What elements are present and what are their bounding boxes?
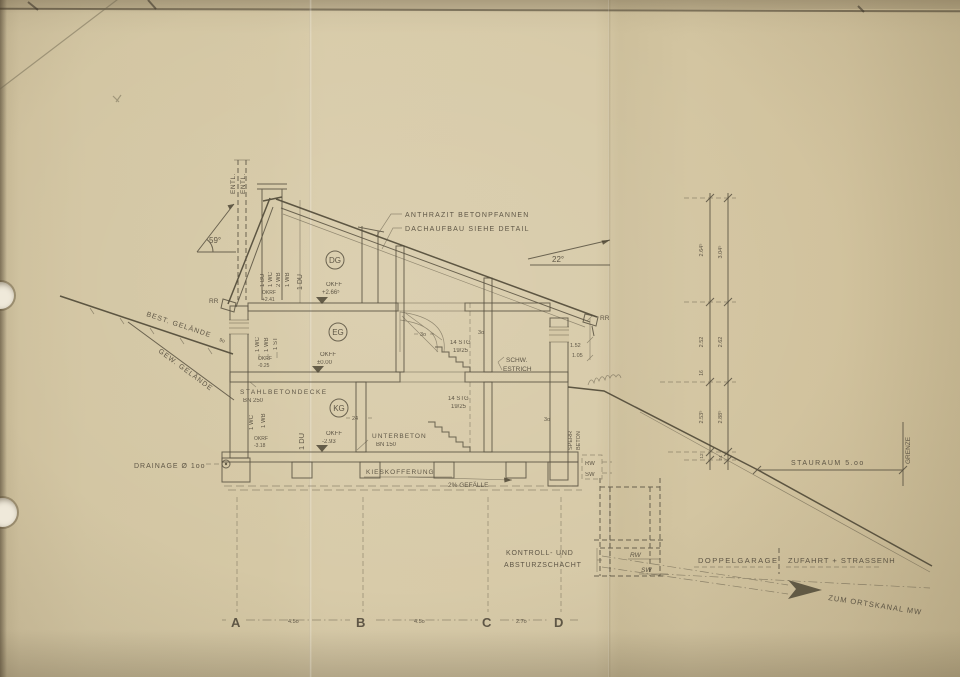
slope-label: 2% GEFÄLLE: [448, 481, 489, 489]
level-kg-label: OKFF: [326, 431, 342, 437]
base-note-1: UNTERBETON: [372, 433, 427, 440]
window-left-gap: [229, 320, 249, 334]
wall-dim-arrows: [346, 334, 434, 418]
vent-label-2: ENTL.: [240, 173, 247, 194]
window-right: [549, 327, 569, 342]
stauraum-label: STAURAUM 5.oo: [791, 460, 865, 467]
slope-arrow-line: [408, 477, 512, 480]
chain-dim: 2.88⁵: [717, 411, 724, 424]
fixture-label: 1 WC: [249, 414, 255, 430]
fixture-label: 1 WB: [264, 337, 270, 352]
chain-extension-lines: [660, 198, 736, 460]
wall-dim: 3o: [478, 330, 484, 336]
chain-dim: 3.04⁵: [717, 246, 724, 259]
waterproof-note-2: BETON: [576, 431, 582, 450]
chain-lines: [710, 193, 728, 470]
drainage-pipe-dot: [225, 463, 227, 465]
axis-label-b: B: [356, 615, 365, 630]
gravel-label: KIESKOFFERUNG: [366, 469, 435, 476]
rainwater-label: RW: [585, 461, 595, 467]
rainwater-line-label: RW: [630, 552, 642, 559]
sewer-arrow-icon: [788, 580, 822, 599]
slab-note-2: BN 250: [243, 398, 264, 404]
pitch-left-label: 59°: [209, 236, 221, 245]
roof-note-2: DACHAUFBAU SIEHE DETAIL: [405, 226, 530, 233]
eave-dim-line: [587, 315, 593, 361]
level-dg-value: +2.66⁵: [322, 289, 340, 296]
level-eg-label: OKFF: [320, 352, 336, 358]
storey-label-kg: KG: [333, 404, 345, 413]
blueprint-paper: BEST. GELÄNDE 9o GEW. GELÄNDE DRAINAGE Ø…: [0, 0, 960, 677]
stair-note-1b: 19/25: [453, 348, 469, 354]
shaft-label-1: KONTROLL- UND: [506, 550, 574, 557]
storey-label-dg: DG: [329, 256, 341, 265]
pitch-right-arrow: [602, 240, 611, 245]
section-drawing-svg: BEST. GELÄNDE 9o GEW. GELÄNDE DRAINAGE Ø…: [0, 0, 960, 677]
wastewater-line-label: SW: [641, 567, 652, 574]
screed-note-2: ESTRICH: [503, 366, 532, 373]
fixture-label: 1 WB: [285, 272, 291, 287]
slab-note-1: STAHLBETONDECKE: [240, 389, 328, 396]
vent-label-1: ENTL.: [230, 173, 237, 194]
garage-label: DOPPELGARAGE: [698, 556, 779, 565]
screed-note-1: SCHW.: [506, 357, 528, 364]
pitch-right-triangle: [528, 240, 610, 265]
chain-dim: 2.52: [699, 337, 705, 348]
chain-dim: 2.64⁵: [698, 244, 705, 257]
existing-grade-dim: 9o: [218, 337, 225, 345]
gutter-right-label: RR: [600, 315, 610, 322]
eave-dim-2: 1.05: [572, 353, 583, 359]
sublevel-eg-value: -0.25: [258, 363, 270, 369]
sublevel-kg-label: OKRF: [254, 436, 268, 442]
fixture-label: 1 WC: [255, 336, 261, 352]
level-markers: [312, 297, 328, 452]
storey-label-eg: EG: [332, 328, 344, 337]
axis-dim: 4.5o: [288, 619, 299, 625]
wall-dim: 3o: [544, 417, 550, 423]
interior-annotations: DG EG KG OKFF +2.66⁵ OKFF ±0.00 OKFF -2.…: [240, 251, 612, 489]
window-left: [229, 320, 249, 334]
stair-note-2a: 14 STG: [448, 396, 469, 402]
boundary-label: GRENZE: [905, 436, 912, 464]
sublevel-dg-label: OKRF: [262, 290, 276, 296]
fixture-label: 1 WB: [261, 413, 267, 428]
shrub-symbol: [588, 375, 621, 385]
wastewater-label: SW: [585, 472, 595, 478]
chain-dim: 2.53⁵: [698, 411, 705, 424]
sublevel-kg-value: -3.18: [254, 443, 266, 449]
gutter-left-label: RR: [209, 298, 219, 305]
fixture-label: 2 WB: [276, 272, 282, 287]
stauraum-line: [753, 466, 907, 474]
fixture-label: 1 DU: [297, 433, 306, 450]
sublevel-dg-value: +2.41: [262, 297, 275, 303]
chain-dim: 12: [699, 453, 705, 459]
shaft-label-2: ABSTURZSCHACHT: [504, 562, 582, 569]
existing-grade-line: [60, 296, 233, 354]
fixture-label: 1 ST: [273, 337, 279, 350]
level-kg-value: -2.93: [322, 439, 336, 445]
level-eg-value: ±0.00: [317, 360, 333, 366]
fixture-label: 1 DU: [297, 274, 304, 290]
new-grade-line: [128, 322, 234, 400]
new-grade-label: GEW. GELÄNDE: [157, 347, 215, 393]
pitch-right-label: 22°: [552, 255, 564, 264]
level-dg-label: OKFF: [326, 282, 342, 288]
sublevel-eg-label: OKRF: [258, 356, 272, 362]
slab-note-leader: [250, 382, 256, 387]
stair-note-2b: 19/25: [451, 404, 467, 410]
wall-dim: 3o: [420, 332, 426, 338]
eave-dim-1: 1.52: [570, 343, 581, 349]
roof-pitch-right: 22°: [528, 240, 610, 265]
stair-note-1a: 14 STG: [450, 340, 471, 346]
house-sewer-connections: RW SW: [582, 455, 612, 479]
pencil-marks: [0, 0, 864, 102]
base-note-2: BN 150: [376, 442, 397, 448]
stairs: [400, 303, 470, 452]
interior-walls: [356, 246, 492, 452]
edge-tick-marks: [28, 0, 864, 12]
stair-flight-kg: [428, 422, 470, 452]
roof-pitch-left: 59°: [197, 204, 236, 252]
window-right-gap: [549, 327, 569, 342]
fixture-label: 1 WC: [268, 271, 274, 287]
wall-dim: 24: [352, 416, 358, 422]
drainage-label: DRAINAGE Ø 1oo: [134, 463, 206, 470]
axis-label-c: C: [482, 615, 492, 630]
axis-label-a: A: [231, 615, 241, 630]
pencil-diagonal: [0, 0, 130, 102]
axis-label-d: D: [554, 615, 563, 630]
chain-dim: 2.62: [718, 337, 724, 348]
gravel-bed-lines: [224, 486, 582, 490]
sewer-arrow-label: ZUM ORTSKANAL MW: [828, 593, 923, 617]
chain-dim: 16: [699, 370, 705, 376]
terrain-right-secondary: [640, 412, 930, 572]
roof-note-1: ANTHRAZIT BETONPFANNEN: [405, 212, 530, 219]
axis-dim: 2.7o: [516, 619, 527, 625]
fixture-label: 1 BU: [260, 274, 266, 287]
terrain-right-line: [568, 387, 932, 566]
axis-dim: 4.5o: [414, 619, 425, 625]
driveway-label: ZUFAHRT + STRASSENH: [788, 556, 896, 565]
terrain-left: BEST. GELÄNDE 9o GEW. GELÄNDE DRAINAGE Ø…: [60, 296, 234, 470]
dimension-chain-right: 2.64⁵ 3.04⁵ 2.52 2.62 16 2.53⁵ 2.88⁵ 12 …: [660, 193, 736, 470]
waterproof-note-1: SPERR: [568, 431, 574, 450]
